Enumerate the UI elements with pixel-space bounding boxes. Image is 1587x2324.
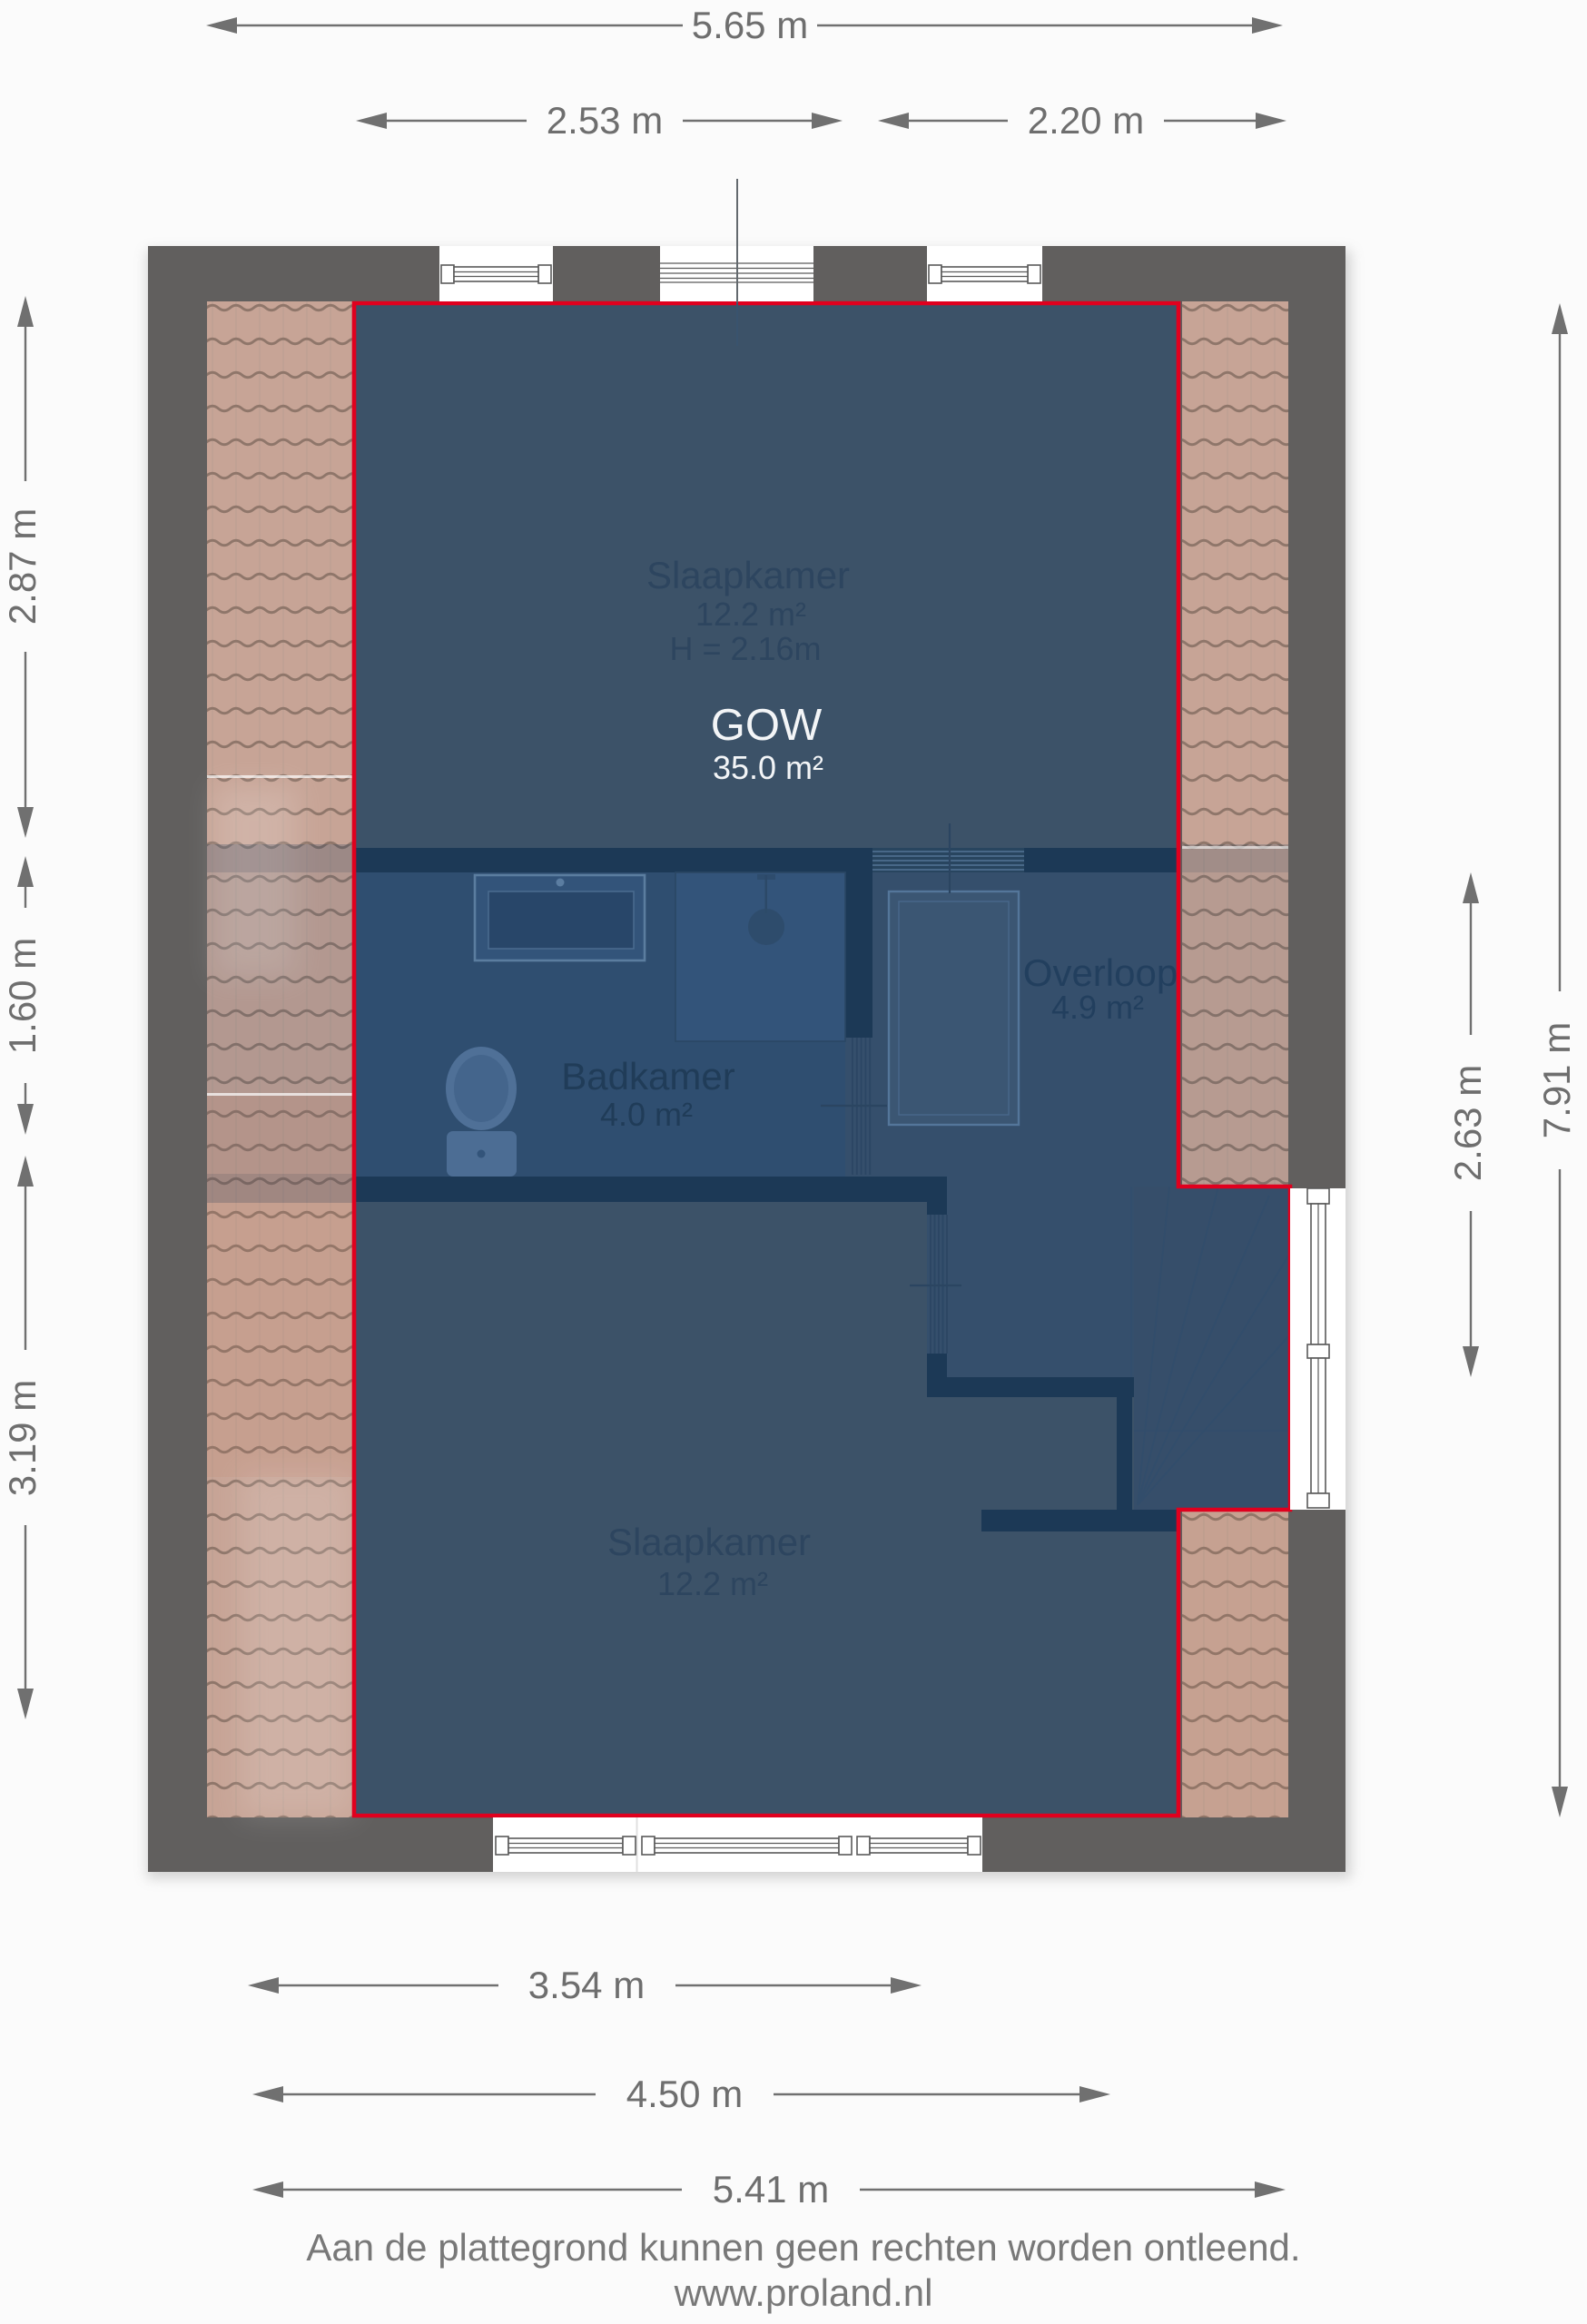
svg-text:3.54 m: 3.54 m <box>528 1964 645 2006</box>
svg-text:Badkamer: Badkamer <box>561 1055 734 1098</box>
svg-text:12.2 m²: 12.2 m² <box>695 596 806 633</box>
svg-text:Overloop: Overloop <box>1023 951 1178 994</box>
svg-text:Aan de plattegrond kunnen geen: Aan de plattegrond kunnen geen rechten w… <box>306 2226 1300 2269</box>
svg-text:4.50 m: 4.50 m <box>626 2073 743 2115</box>
svg-text:www.proland.nl: www.proland.nl <box>674 2271 933 2314</box>
svg-text:H = 2.16m: H = 2.16m <box>669 630 821 667</box>
svg-text:3.19 m: 3.19 m <box>1 1380 44 1496</box>
svg-text:2.20 m: 2.20 m <box>1028 99 1144 142</box>
svg-text:5.41 m: 5.41 m <box>713 2168 829 2211</box>
svg-text:GOW: GOW <box>711 701 823 750</box>
svg-text:Slaapkamer: Slaapkamer <box>607 1521 811 1563</box>
svg-text:5.65 m: 5.65 m <box>692 4 808 46</box>
svg-text:2.87 m: 2.87 m <box>1 508 44 625</box>
svg-text:4.9 m²: 4.9 m² <box>1051 989 1144 1026</box>
svg-text:Slaapkamer: Slaapkamer <box>646 554 850 596</box>
svg-text:35.0 m²: 35.0 m² <box>713 749 823 786</box>
svg-text:2.63 m: 2.63 m <box>1446 1065 1489 1181</box>
svg-text:1.60 m: 1.60 m <box>1 938 44 1054</box>
svg-text:4.0 m²: 4.0 m² <box>600 1096 693 1133</box>
svg-text:7.91 m: 7.91 m <box>1535 1022 1578 1138</box>
svg-text:12.2 m²: 12.2 m² <box>657 1565 768 1602</box>
svg-text:2.53 m: 2.53 m <box>547 99 663 142</box>
